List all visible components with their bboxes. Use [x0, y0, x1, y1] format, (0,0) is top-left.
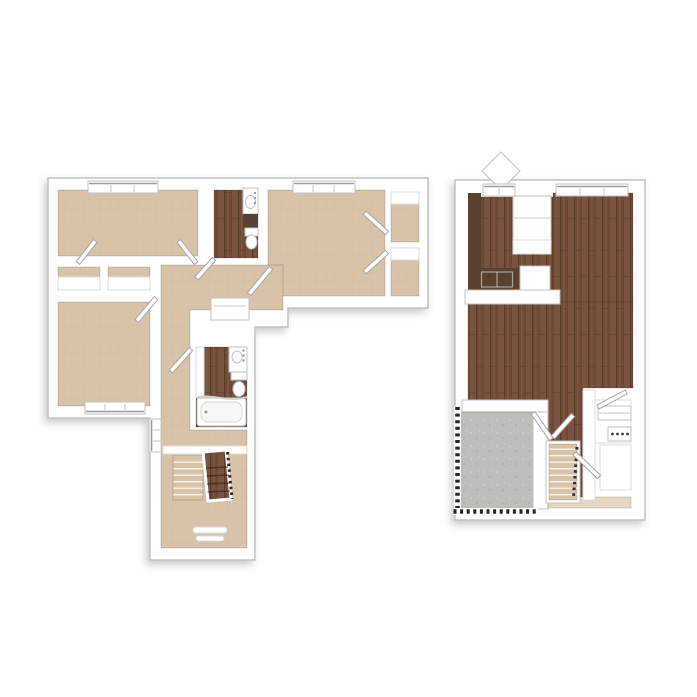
window-stair-hall [149, 419, 161, 452]
window-kitchen [483, 184, 515, 196]
appliance-knob [621, 433, 624, 436]
faucet-dot [254, 192, 256, 194]
lower-flight-step [207, 475, 230, 476]
lower-flight-step [206, 467, 228, 468]
living-floor-upper [553, 193, 633, 302]
right-floor-plan [454, 152, 646, 520]
kitchen-faucet-dot [503, 274, 506, 277]
toilet-tank [231, 372, 247, 380]
faucet-dot [254, 197, 256, 199]
bedroom-top-right-floor [268, 190, 385, 296]
staircase-right-plan [546, 441, 580, 503]
closet-right-lower-shelf [391, 248, 419, 260]
appliance-knob [626, 433, 629, 436]
appliance-knob [616, 433, 619, 436]
entry-mat [193, 527, 227, 533]
left-floor-plan [48, 178, 428, 560]
appliance-knob [611, 433, 614, 436]
dishwasher-counter [520, 266, 550, 290]
hall-wall-strip [583, 390, 595, 500]
window-living [556, 184, 628, 196]
floor-plan-image [0, 0, 697, 697]
shower-wall [196, 347, 204, 397]
lower-flight-step [207, 483, 230, 484]
under-stair-closet [600, 445, 631, 490]
faucet-dot [254, 202, 256, 204]
tub-drain [205, 411, 208, 414]
pantry-counter [513, 240, 551, 254]
laundry-area [583, 390, 631, 500]
bedroom-top-left-floor [58, 190, 198, 256]
faucet-dot [242, 359, 244, 361]
faucet-dot [242, 354, 244, 356]
patio-concrete-floor [458, 412, 535, 510]
entry-mat [196, 536, 224, 541]
window-bedroom-top-right [293, 181, 355, 193]
window-bedroom-bottom-left [85, 402, 145, 414]
stair-treads [173, 456, 203, 500]
faucet-dot [242, 349, 244, 351]
stair-treads [549, 444, 577, 500]
floor-plan-svg [0, 0, 697, 697]
dark-counter [243, 214, 258, 228]
closet-right-upper-shelf [391, 192, 419, 204]
window-bedroom-top-left [88, 181, 158, 193]
kitchen-faucet-dot [488, 274, 491, 277]
kitchen-fixtures [465, 193, 560, 304]
kitchen-half-wall [465, 290, 560, 304]
sink-icon [232, 351, 242, 363]
closet-left-2-shelf [108, 277, 150, 290]
closet-left-1-shelf [58, 277, 100, 290]
toilet-bowl-icon [233, 382, 245, 397]
lower-flight-step [208, 491, 231, 492]
patio-ledge-wall [462, 400, 548, 412]
toilet-bowl-icon [246, 235, 257, 249]
linen-closet [211, 298, 249, 320]
